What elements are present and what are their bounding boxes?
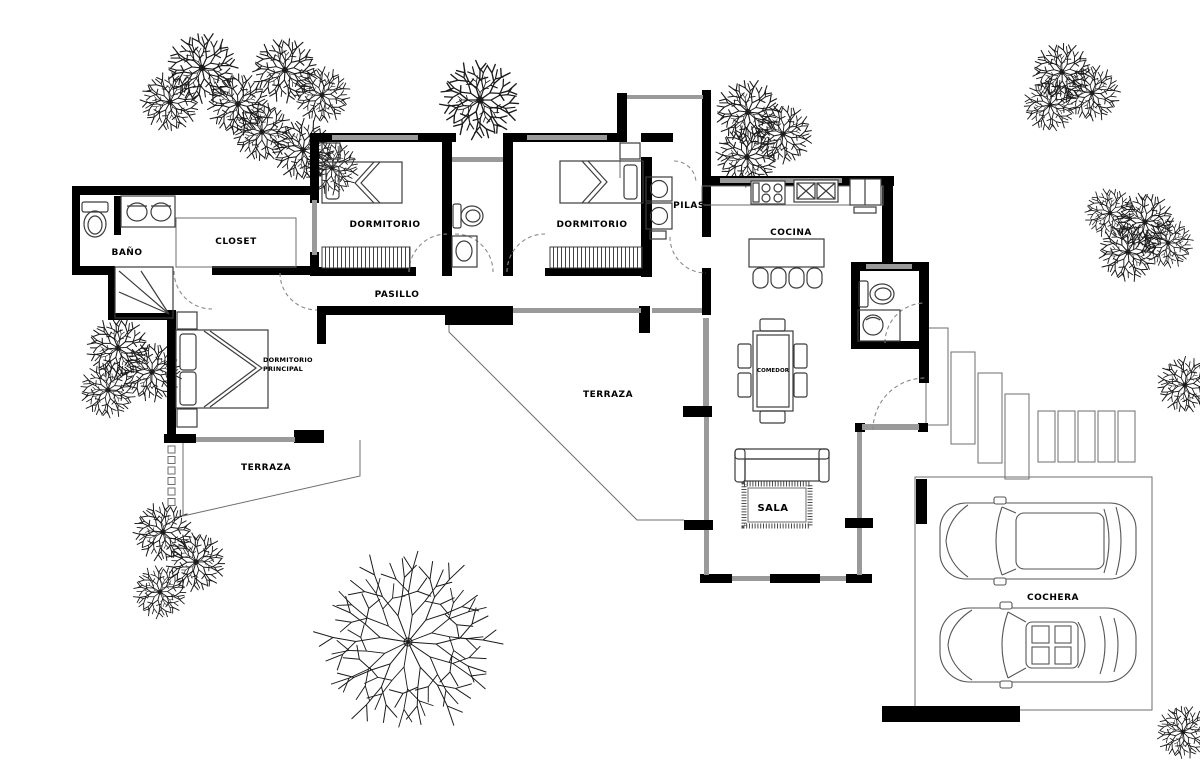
terraza-center-outline [449, 316, 684, 520]
tree-icon [1141, 341, 1200, 426]
toilet-icon [453, 204, 483, 228]
room-label-cochera: COCHERA [1027, 593, 1079, 603]
window-segment [652, 308, 702, 313]
window-segment [513, 308, 641, 313]
room-label-dormitorio-1: DORMITORIO [349, 220, 420, 230]
chair-icon [794, 373, 807, 397]
door-arc [455, 234, 493, 272]
stove-icon [751, 181, 785, 204]
large-tree-icon [310, 537, 503, 746]
tree-icon [158, 524, 234, 598]
room-label-bano: BAÑO [111, 247, 142, 258]
bed-icon [176, 312, 268, 427]
room-label-dormitorio-2: DORMITORIO [556, 220, 627, 230]
door-arc [174, 271, 212, 309]
sofa-icon [735, 449, 829, 482]
window-segment [857, 528, 862, 575]
room-label-comedor: COMEDOR [757, 368, 790, 374]
chair-icon [738, 344, 751, 368]
tree-icon [117, 486, 207, 577]
room-label-dormitorio-principal-1: DORMITORIO [263, 356, 313, 364]
window-segment [820, 576, 846, 581]
tree-icon [1024, 34, 1098, 110]
tree-icon [1010, 63, 1092, 145]
chair-icon [794, 344, 807, 368]
sink-icon [858, 310, 900, 341]
window-segment [866, 264, 912, 269]
fridge-icon [850, 179, 881, 213]
door-arc [670, 237, 706, 273]
room-label-cocina: COCINA [770, 228, 812, 238]
window-segment [732, 576, 770, 581]
chair-icon [760, 319, 785, 331]
room-label-sala: SALA [757, 503, 788, 514]
bed-icon [560, 143, 643, 203]
window-segment [527, 135, 607, 140]
room-label-terraza-izquierda: TERRAZA [241, 463, 291, 473]
window-segment [196, 437, 295, 442]
entry-threshold [862, 424, 919, 430]
window-segment [332, 135, 418, 140]
car-icon [940, 602, 1136, 688]
double-sink-icon [121, 196, 175, 227]
room-label-dormitorio-principal-2: PRINCIPAL [263, 365, 303, 373]
room-label-pilas: PILAS [673, 201, 705, 211]
closet-hatch [322, 247, 410, 268]
room-label-pasillo: PASILLO [375, 290, 420, 300]
window-segment [627, 95, 703, 99]
closet-hatch [550, 247, 642, 268]
floor-plan-canvas: BAÑO CLOSET DORMITORIO DORMITORIO PASILL… [0, 0, 1200, 770]
kitchen-sink-icon [794, 180, 838, 202]
stepping-stones [168, 446, 175, 506]
tree-icon [1052, 53, 1132, 131]
window-segment [312, 200, 317, 255]
window-segment [704, 530, 709, 575]
entry-door-arc [873, 378, 925, 430]
shower-icon [115, 267, 173, 318]
sink-icon [452, 236, 477, 267]
kitchen-island [749, 239, 824, 288]
bed-icon [322, 143, 402, 203]
door-arc [674, 161, 696, 183]
terraza-left-outline [183, 440, 360, 516]
toilet-icon [82, 202, 108, 237]
door-arc [280, 273, 317, 310]
window-segment [704, 417, 709, 520]
chair-icon [760, 411, 785, 423]
window-segment [703, 318, 709, 406]
tree-icon [712, 76, 781, 149]
tree-icon [128, 557, 194, 626]
chair-icon [738, 373, 751, 397]
exterior-stairs [926, 328, 1135, 479]
door-arc [409, 234, 447, 272]
room-label-closet: CLOSET [215, 237, 257, 247]
window-segment [857, 432, 862, 518]
tree-icon [1146, 696, 1200, 766]
window-segment [452, 157, 503, 162]
tree-icon [261, 107, 347, 195]
car-icon [940, 497, 1136, 585]
room-label-terraza-central: TERRAZA [583, 390, 633, 400]
floor-plan-drawing: BAÑO CLOSET DORMITORIO DORMITORIO PASILL… [0, 0, 1200, 770]
toilet-icon [859, 281, 894, 307]
laundry-tub [650, 231, 666, 239]
